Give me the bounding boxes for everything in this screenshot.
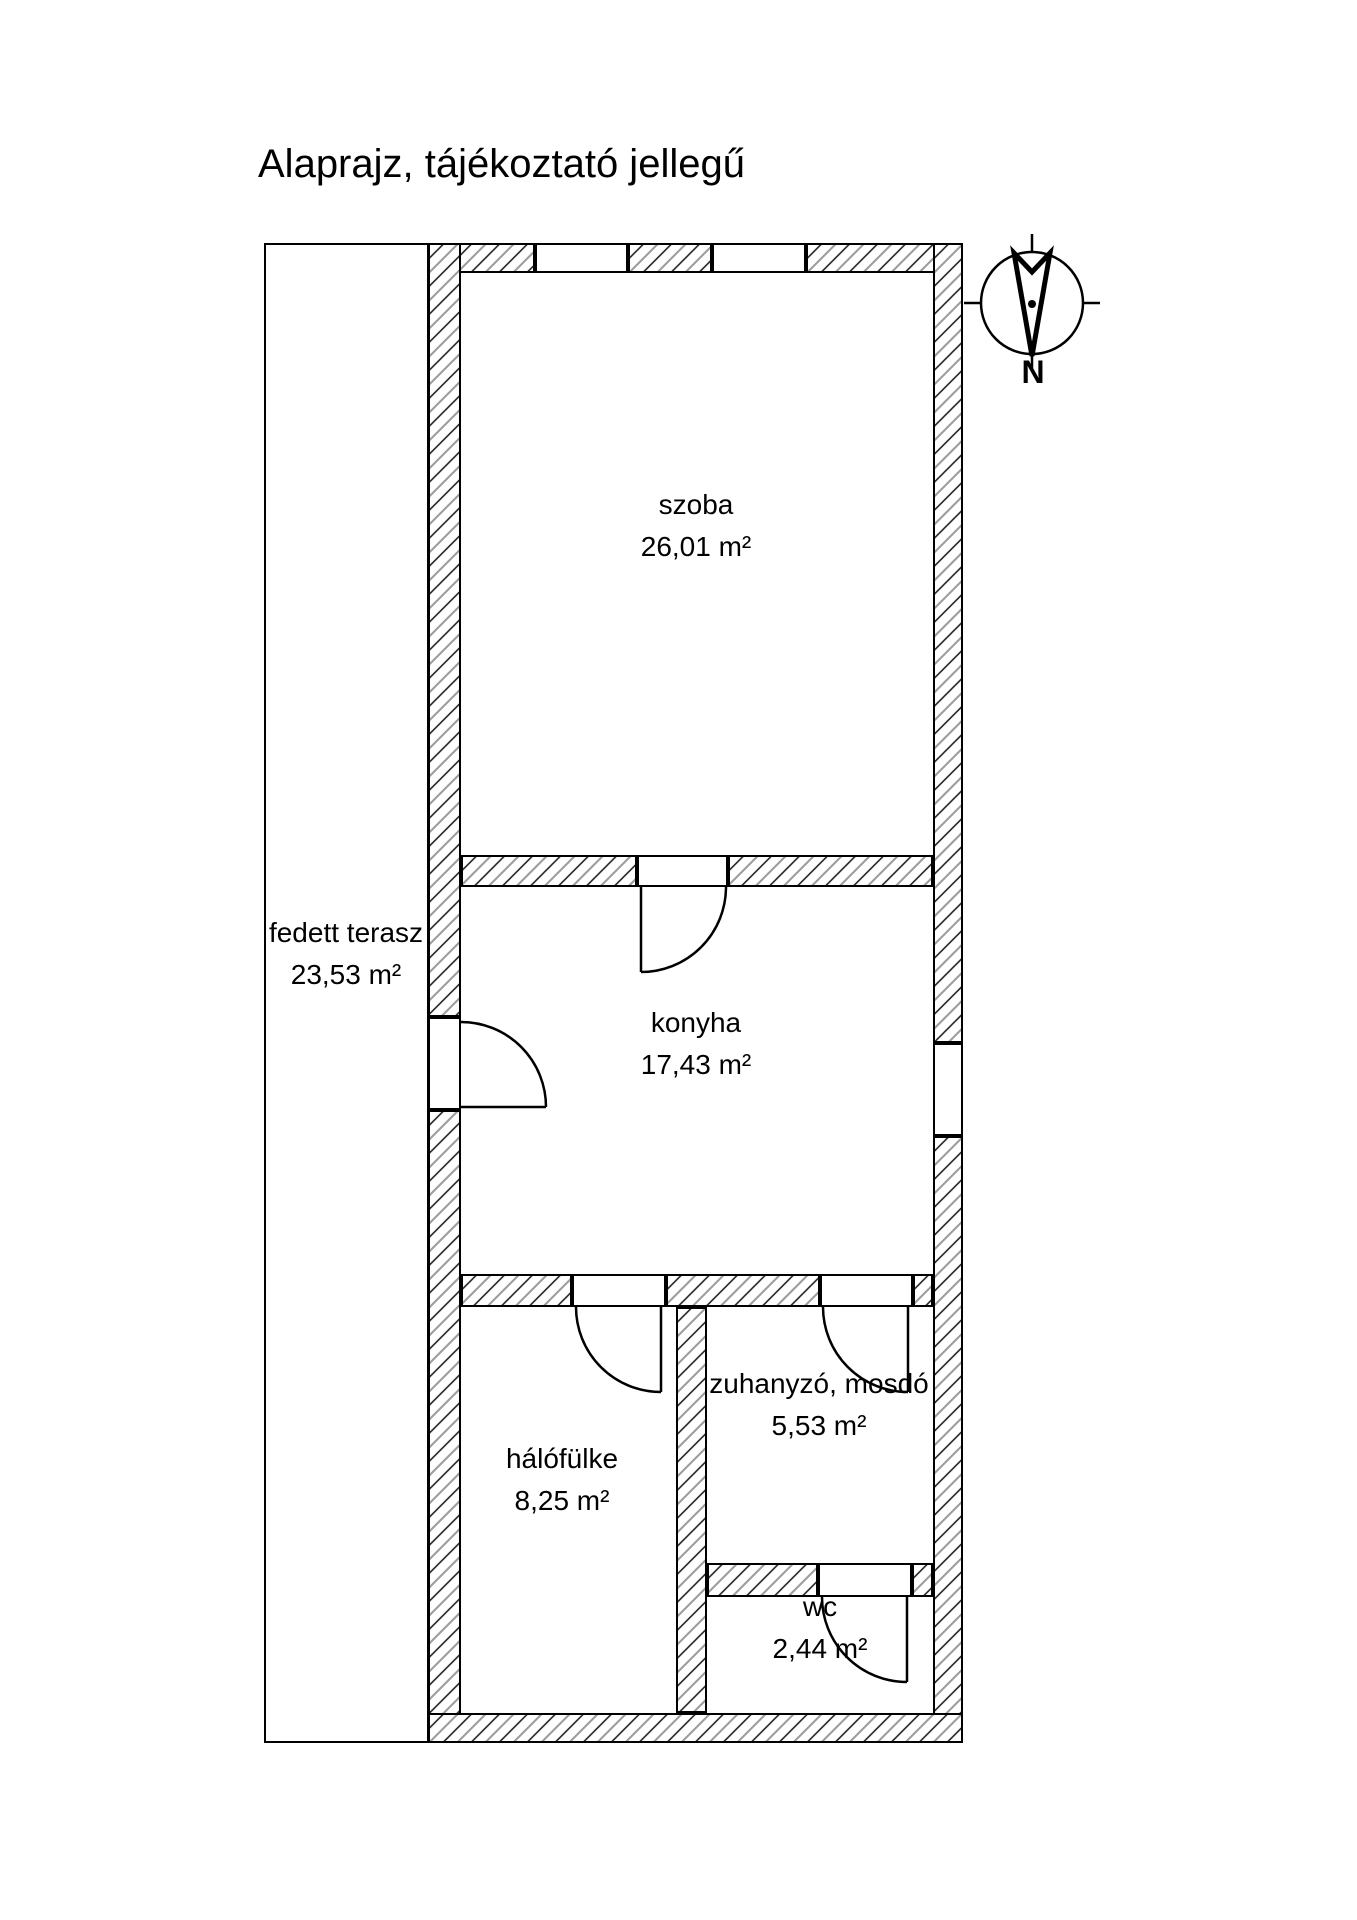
room-label-terasz: fedett terasz 23,53 m² — [196, 918, 496, 990]
room-label-konyha: konyha 17,43 m² — [546, 1008, 846, 1080]
compass-circle — [981, 252, 1083, 354]
window-top-1 — [535, 243, 628, 273]
room-label-halofulke: hálófülke 8,25 m² — [412, 1444, 712, 1516]
room-name: hálófülke — [412, 1444, 712, 1473]
room-area: 2,44 m² — [670, 1634, 970, 1663]
room-name: szoba — [546, 490, 846, 519]
door-swing-arc — [641, 887, 726, 972]
window-right — [933, 1043, 963, 1136]
terrace-door — [461, 1022, 546, 1107]
wall-left-segment-1 — [428, 243, 461, 1017]
wall-konyha-lower-3 — [913, 1274, 933, 1307]
floor-plan-canvas: Alaprajz, tájékoztató jellegű — [0, 0, 1357, 1920]
room-label-wc: wc 2,44 m² — [670, 1592, 970, 1664]
szoba-door — [641, 887, 726, 972]
room-name: wc — [670, 1592, 970, 1621]
room-label-zuhanyzo: zuhanyzó, mosdó 5,53 m² — [669, 1369, 969, 1441]
wall-szoba-konyha-2 — [728, 855, 933, 887]
door-swing-arc — [576, 1307, 661, 1392]
room-label-szoba: szoba 26,01 m² — [546, 490, 846, 562]
terrace-outline — [264, 243, 429, 1743]
compass-north-indicator: N — [964, 234, 1100, 390]
room-name: konyha — [546, 1008, 846, 1037]
page-title: Alaprajz, tájékoztató jellegű — [258, 142, 745, 187]
halofulke-door — [576, 1307, 661, 1392]
door-swing-arc — [461, 1022, 546, 1107]
door-opening-szoba — [637, 855, 728, 887]
room-name: fedett terasz — [196, 918, 496, 947]
door-opening-halofulke — [572, 1274, 666, 1307]
door-opening-terrace — [428, 1017, 461, 1110]
room-area: 5,53 m² — [669, 1411, 969, 1440]
room-area: 26,01 m² — [546, 532, 846, 561]
north-arrow-icon — [1014, 253, 1050, 356]
room-name: zuhanyzó, mosdó — [669, 1369, 969, 1398]
wall-konyha-lower-2 — [666, 1274, 820, 1307]
compass-north-label: N — [1021, 354, 1044, 390]
room-area: 8,25 m² — [412, 1486, 712, 1515]
door-opening-zuhanyzo — [820, 1274, 913, 1307]
window-top-2 — [712, 243, 806, 273]
room-area: 17,43 m² — [546, 1050, 846, 1079]
wall-right-segment-1 — [933, 243, 963, 1043]
room-area: 23,53 m² — [196, 960, 496, 989]
wall-bottom — [428, 1713, 963, 1743]
wall-top-segment-2 — [628, 243, 712, 273]
wall-left-segment-2 — [428, 1110, 461, 1743]
compass-center-dot — [1028, 300, 1036, 308]
wall-konyha-lower-1 — [461, 1274, 572, 1307]
wall-szoba-konyha-1 — [461, 855, 637, 887]
